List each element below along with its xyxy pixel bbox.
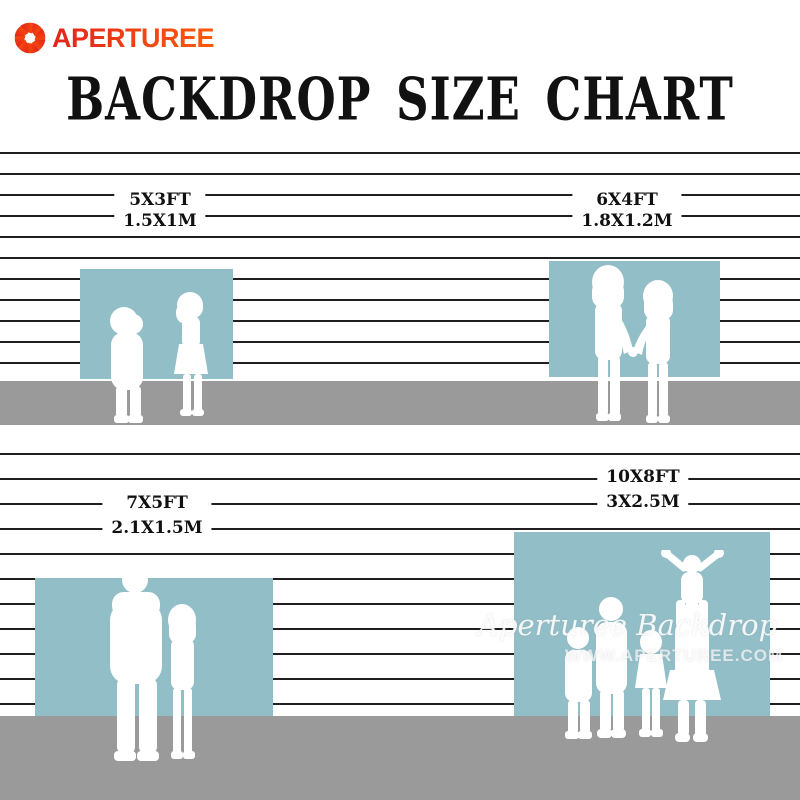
page-title: BACKDROP SIZE CHART (0, 64, 800, 134)
man-silhouette (110, 567, 162, 761)
size-label-5x3: 5X3FT 1.5X1M (114, 190, 205, 232)
size-ft: 7X5FT (102, 491, 211, 516)
girl-tall-silhouette (592, 265, 633, 421)
size-label-7x5: 7X5FT 2.1X1.5M (102, 491, 211, 541)
scene-5x3-silhouettes (95, 290, 220, 435)
backdrop-size-chart: APERTUREE BACKDROP SIZE CHART 5X3FT 1.5X… (0, 0, 800, 800)
toddler-boy-silhouette (110, 307, 143, 423)
size-ft: 5X3FT (114, 190, 205, 211)
size-ft: 10X8FT (597, 465, 688, 490)
boy-silhouette (565, 627, 592, 739)
toddler-girl-silhouette (174, 292, 208, 416)
size-m: 1.5X1M (114, 211, 205, 232)
size-label-10x8: 10X8FT 3X2.5M (597, 465, 688, 515)
size-m: 2.1X1.5M (102, 516, 211, 541)
watermark-script: Aperturee Backdrop (478, 608, 777, 642)
girl-short-silhouette (628, 280, 673, 423)
size-m: 1.8X1.2M (572, 211, 681, 232)
size-label-6x4: 6X4FT 1.8X1.2M (572, 190, 681, 232)
scene-6x4-silhouettes (580, 258, 690, 433)
girl-silhouette (168, 604, 196, 759)
size-m: 3X2.5M (597, 490, 688, 515)
size-ft: 6X4FT (572, 190, 681, 211)
brand-name: APERTUREE (52, 23, 214, 54)
brand-logo: APERTUREE (12, 20, 214, 56)
aperture-icon (12, 20, 48, 56)
scene-7x5-silhouettes (90, 558, 215, 773)
watermark-url: WWW.APERTUREE.COM (565, 646, 783, 666)
